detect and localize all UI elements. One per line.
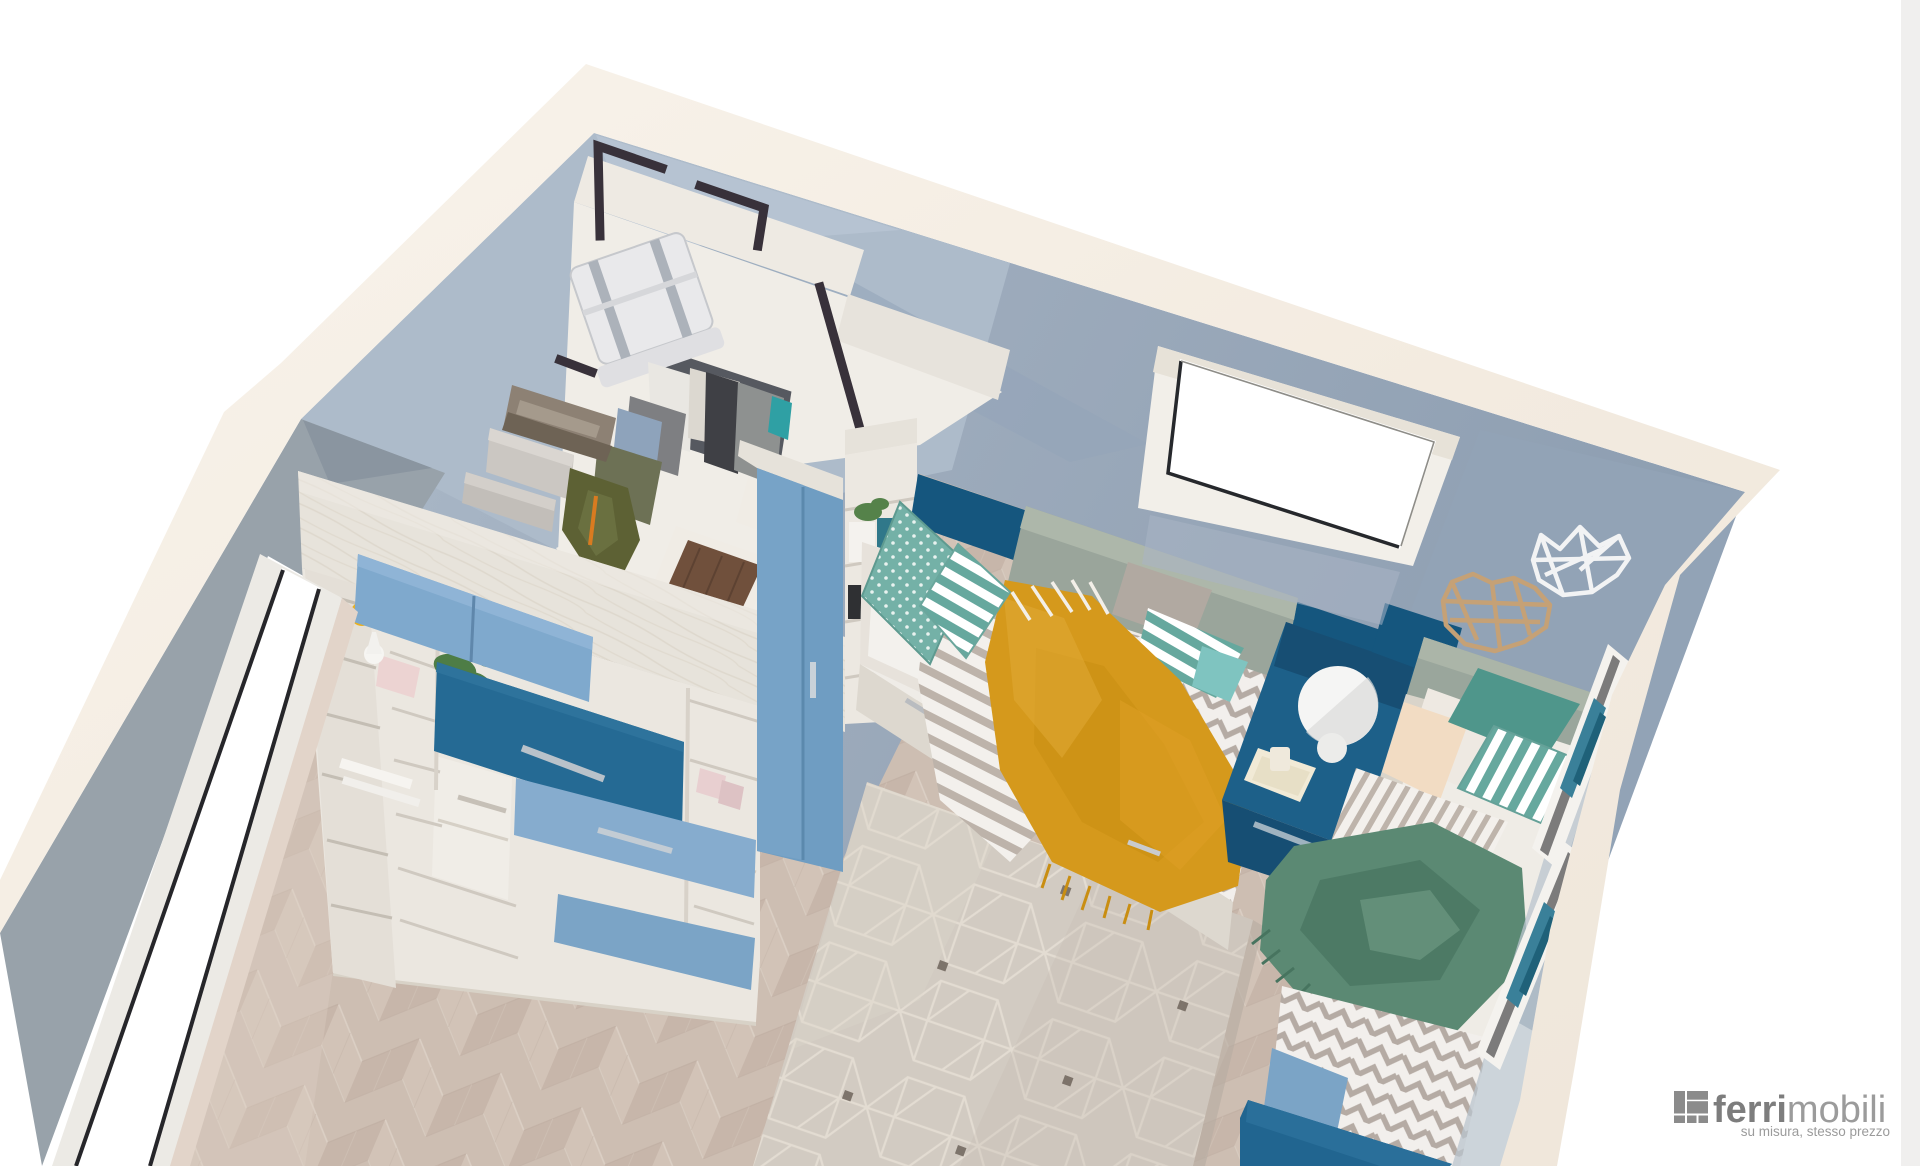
svg-text:su misura, stesso prezzo: su misura, stesso prezzo: [1741, 1124, 1890, 1139]
